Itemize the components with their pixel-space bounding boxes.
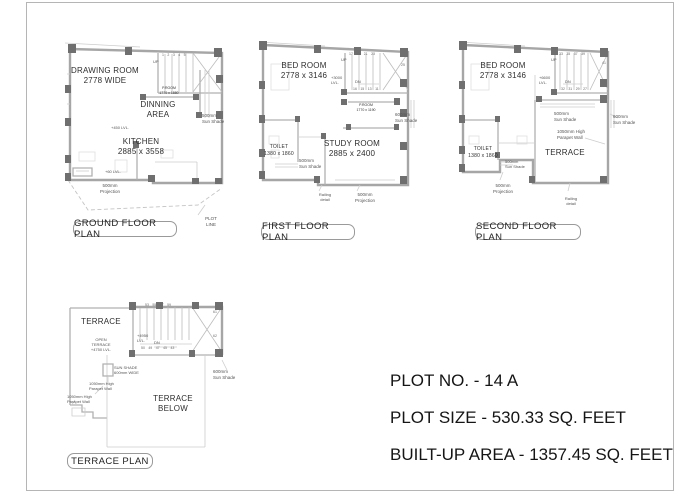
second-floor-plan: BED ROOM 2778 x 3146 TERRACE TOILET 1380… bbox=[455, 40, 640, 245]
stair-treads bbox=[352, 53, 380, 90]
terrace-plan: TERRACE OPEN TERRACE +4750 LVL. +4950 LV… bbox=[55, 290, 250, 480]
roof-projection-line bbox=[65, 43, 140, 47]
toilet-label: TOILET 1380 x 1860 bbox=[465, 146, 501, 159]
plot-no-text: PLOT NO. - 14 A bbox=[390, 371, 518, 391]
sun-shade-block bbox=[103, 364, 113, 376]
first-floor-plan: BED ROOM 2778 x 3146 STUDY ROOM 2885 x 2… bbox=[255, 40, 425, 245]
stair-numbers-top: 17 19 21 23 bbox=[349, 52, 375, 56]
built-up-area-text: BUILT-UP AREA - 1357.45 SQ. FEET bbox=[390, 445, 673, 465]
dn-label: DN bbox=[154, 340, 160, 345]
bed-room-label: BED ROOM 2778 x 3146 bbox=[463, 61, 543, 82]
ground-floor-plan-title: GROUND FLOOR PLAN bbox=[73, 221, 177, 237]
terrace-plan-title: TERRACE PLAN bbox=[67, 453, 153, 469]
level-6600-label: +6600 LVL. bbox=[539, 75, 550, 85]
parapet-1050-label-a: 1050mm High Parapet Wall bbox=[89, 381, 114, 391]
ground-floor-plan: DRAWING ROOM 2778 WIDE DINNING AREA KITC… bbox=[55, 40, 240, 245]
parapet-1050-label-b: 1050mm High Parapet Wall bbox=[67, 394, 92, 404]
sun-shade-600-label: 600mm Sun Shade bbox=[213, 369, 235, 381]
sun-shade-600-label: 600mm Sun Shade bbox=[613, 114, 635, 126]
sun-shade-mid-lines bbox=[540, 104, 595, 107]
up-label: UP bbox=[551, 57, 557, 62]
stair-winder-lines bbox=[192, 307, 222, 352]
sun-shade-500-small-label: 500mm Sun Shade bbox=[505, 159, 525, 169]
partition-lines bbox=[498, 75, 535, 143]
level-60-label: +60 LVL. bbox=[105, 169, 121, 174]
stair-treads bbox=[560, 53, 588, 90]
stair-numbers-bottom: 16 15 13 11 bbox=[353, 87, 379, 91]
railing-label: Railing detail bbox=[313, 192, 337, 202]
study-room-label: STUDY ROOM 2885 x 2400 bbox=[313, 139, 391, 160]
plot-size-text: PLOT SIZE - 530.33 SQ. FEET bbox=[390, 408, 626, 428]
railing-label: Railing detail bbox=[559, 196, 583, 206]
projection-500-label: 500mm Projection bbox=[351, 192, 379, 204]
first-floor-plan-title: FIRST FLOOR PLAN bbox=[261, 224, 355, 240]
parapet-1050-label: 1050mm High Parapet Wall bbox=[557, 129, 585, 141]
terrace-label: TERRACE bbox=[533, 148, 597, 158]
stair-number-62: 62 bbox=[213, 334, 217, 338]
drawing-room-label: DRAWING ROOM 2778 WIDE bbox=[63, 66, 147, 87]
stair-number-right: 41 bbox=[602, 61, 606, 65]
projection-500-label: 500mm Projection bbox=[489, 183, 517, 195]
sun-shade-600-wide-label: SUN SHADE 600mm WIDE bbox=[114, 365, 139, 375]
level-450-label: +450 LVL. bbox=[111, 125, 129, 130]
sun-shade-left-lines bbox=[275, 164, 298, 167]
dn-label: DN bbox=[355, 79, 361, 84]
stair-number-right: 25 bbox=[401, 63, 405, 67]
plot-line-leader bbox=[198, 205, 205, 215]
sun-shade-600-label: 600mm Sun Shade bbox=[395, 112, 417, 124]
kitchen-label: KITCHEN 2885 x 3558 bbox=[113, 137, 169, 158]
drawing-sheet: DRAWING ROOM 2778 WIDE DINNING AREA KITC… bbox=[0, 0, 700, 495]
porch-step bbox=[73, 168, 92, 176]
sun-shade-500-label: 500mm Sun Shade bbox=[202, 113, 224, 125]
stair-numbers: 1 2 3 4 5 bbox=[162, 53, 186, 57]
level-4950-label: +4950 LVL. bbox=[137, 333, 148, 343]
p-room-label: P.ROOM 1770 x 1880 bbox=[153, 86, 185, 95]
sun-shade-lines bbox=[205, 70, 209, 118]
open-terrace-label: OPEN TERRACE +4750 LVL. bbox=[85, 337, 117, 353]
level-3000-label: +3000 LVL. bbox=[331, 75, 342, 85]
stair-winder-lines bbox=[193, 53, 222, 92]
projection-500-label: 500mm Projection bbox=[96, 183, 124, 195]
p-room-label: P.ROOM 1770 x 1190 bbox=[351, 103, 381, 112]
dn-label: DN bbox=[565, 79, 571, 84]
stair-numbers-top: 53 55 57 59 bbox=[145, 303, 171, 307]
stair-number-61: 61 bbox=[213, 310, 217, 314]
sun-shade-500-mid-label: 500mm Sun Shade bbox=[554, 111, 576, 123]
dinning-area-label: DINNING AREA bbox=[133, 100, 183, 121]
stair-numbers-bottom: 32 31 29 27 bbox=[561, 87, 587, 91]
stair-numbers-top: 33 35 37 39 bbox=[559, 52, 585, 56]
up-label: UP bbox=[341, 57, 347, 62]
toilet-label: TOILET 1380 x 1860 bbox=[261, 144, 297, 157]
stair-numbers-bottom: 50 49 47 45 43 bbox=[141, 346, 174, 350]
second-floor-plan-title: SECOND FLOOR PLAN bbox=[475, 224, 581, 240]
sun-shade-500-label: 500mm Sun Shade bbox=[299, 158, 321, 170]
plot-line-dashed bbox=[68, 180, 222, 210]
plot-line-label: PLOT LINE bbox=[199, 216, 223, 228]
terrace-label: TERRACE bbox=[71, 317, 131, 327]
terrace-below-label: TERRACE BELOW bbox=[143, 394, 203, 415]
up-label: UP bbox=[153, 59, 159, 64]
